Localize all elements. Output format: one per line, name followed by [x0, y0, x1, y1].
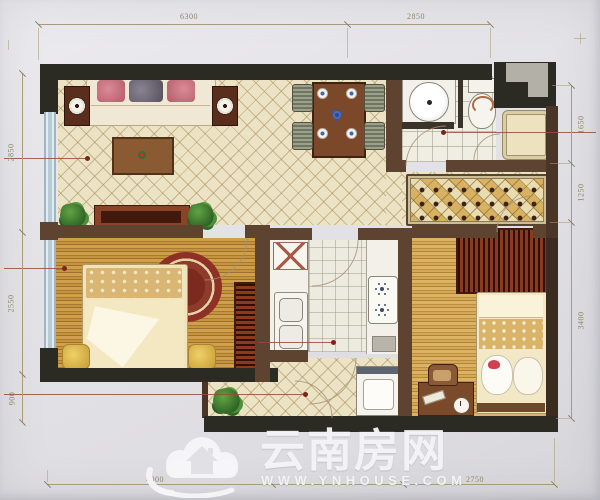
dim-label-top: 6300	[180, 12, 198, 21]
dim-label-bottom: 2750	[466, 475, 484, 484]
leader-dot	[62, 266, 67, 271]
dim-label-top: 2850	[407, 12, 425, 21]
dim-line-left	[22, 73, 23, 423]
leader-line	[4, 394, 305, 395]
corner-mark	[580, 33, 581, 44]
dim-ext	[554, 438, 555, 482]
dim-ext	[490, 28, 491, 58]
dim-ext	[550, 163, 570, 164]
dim-line-top	[38, 24, 490, 25]
leader-dot	[303, 392, 308, 397]
leader-dot	[85, 156, 90, 161]
door-arc	[497, 196, 533, 232]
leader-line	[4, 158, 87, 159]
leader-line	[4, 268, 64, 269]
dim-ext	[47, 470, 48, 482]
cloud-house-logo	[140, 432, 260, 498]
door-arc	[474, 134, 500, 160]
watermark-brand: 云南房网	[260, 428, 456, 473]
dim-ext	[347, 28, 348, 58]
dim-label-right: 3400	[577, 312, 586, 330]
leader-line	[444, 132, 596, 133]
dim-label-right: 1650	[577, 116, 586, 134]
door-arc	[310, 358, 356, 404]
dim-label-left: 900	[7, 392, 16, 406]
dim-label-left: 2850	[7, 144, 16, 162]
door-arc	[312, 240, 358, 286]
leader-dot	[331, 340, 336, 345]
floor-plan-photo: 6300 2850 2850 2550 900 1650 1250 3400 4…	[0, 0, 600, 500]
leader-line	[258, 342, 333, 343]
leader-dot	[441, 130, 446, 135]
dim-label-right: 1250	[577, 184, 586, 202]
dim-ext	[552, 85, 570, 86]
corner-mark	[8, 40, 9, 50]
dim-ext	[556, 418, 570, 419]
door-arc	[295, 381, 332, 418]
door-arc	[406, 126, 446, 166]
dim-ext	[38, 28, 39, 60]
dim-ext	[550, 222, 570, 223]
dim-line-right	[571, 85, 572, 418]
watermark-site: WWW.YNHOUSE.COM	[261, 473, 466, 488]
dim-label-left: 2550	[7, 295, 16, 313]
door-arc	[205, 238, 247, 280]
